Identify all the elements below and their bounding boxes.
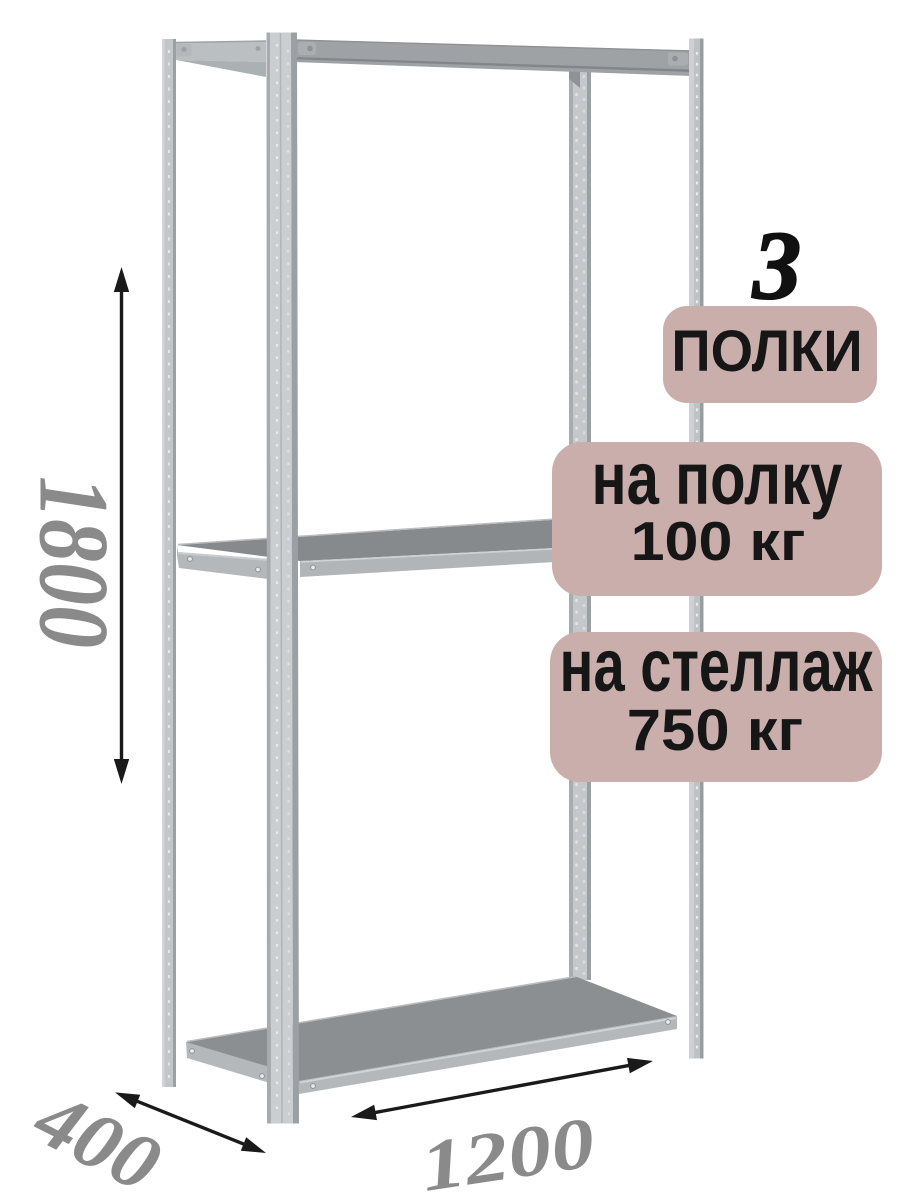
svg-text:1800: 1800 (18, 476, 128, 648)
svg-text:3: 3 (752, 212, 802, 319)
svg-text:750 кг: 750 кг (627, 698, 803, 763)
svg-text:на стеллаж: на стеллаж (560, 625, 874, 707)
svg-text:ПОЛКИ: ПОЛКИ (671, 318, 862, 383)
svg-text:на полку: на полку (592, 438, 843, 520)
svg-text:100 кг: 100 кг (631, 511, 806, 573)
